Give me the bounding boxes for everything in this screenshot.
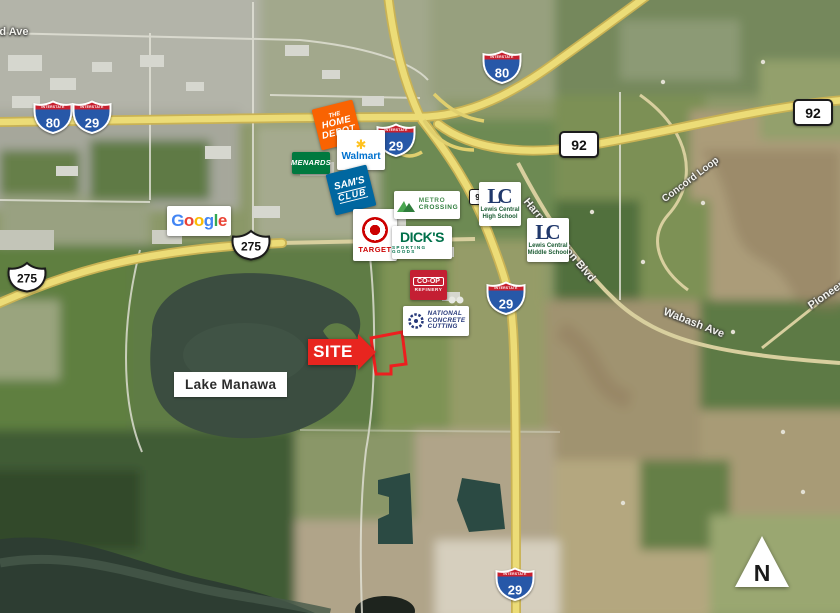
shield-ia92-middle: 92 — [559, 131, 599, 158]
route-number: 80 — [495, 66, 509, 81]
route-number: 80 — [46, 116, 60, 131]
shield-i29-middle: INTERSTATE29 — [486, 281, 526, 315]
logo-text: TARGET — [358, 246, 391, 254]
logo-text: CO-OP — [413, 277, 444, 286]
north-letter: N — [754, 560, 771, 586]
logo-national-concrete-cutting: NATIONAL CONCRETE CUTTING — [403, 306, 469, 336]
route-number: 29 — [389, 139, 403, 154]
logo-text: Walmart — [341, 152, 380, 163]
interstate-banner: INTERSTATE — [490, 55, 514, 59]
route-number: 29 — [85, 116, 99, 131]
north-arrow: N — [733, 534, 791, 590]
logo-text: o — [184, 212, 194, 230]
site-label: SITE — [308, 339, 358, 365]
logo-text: g — [204, 212, 214, 230]
route-number: 29 — [499, 297, 513, 312]
logo-text: CUTTING — [428, 324, 458, 331]
logo-text: REFINERY — [415, 288, 443, 293]
street-label: 3rd Ave — [0, 26, 29, 38]
logo-text: MENARDS — [291, 159, 331, 167]
interstate-banner: INTERSTATE — [503, 572, 527, 576]
lc-monogram: LC — [487, 187, 512, 207]
interstate-banner: INTERSTATE — [41, 105, 65, 109]
shield-i80-top: INTERSTATE80 — [482, 50, 522, 84]
logo-text: Middle School — [528, 250, 569, 257]
logo-walmart: ✱ Walmart — [337, 130, 385, 170]
logo-menards: MENARDS — [292, 152, 330, 174]
logo-metro-crossing: METRO CROSSING — [394, 191, 460, 219]
saw-blade-icon — [407, 312, 425, 330]
route-number: 92 — [805, 105, 821, 121]
interstate-banner: INTERSTATE — [384, 128, 408, 132]
walmart-spark-icon: ✱ — [356, 138, 367, 151]
logo-text: G — [171, 212, 184, 230]
interstate-banner: INTERSTATE — [494, 286, 518, 290]
route-number: 275 — [17, 272, 37, 286]
logo-text: CROSSING — [419, 205, 458, 212]
shield-i29-west: INTERSTATE29 — [72, 100, 112, 134]
logo-text: Lewis Central — [480, 207, 519, 214]
shield-us275-west: 275 — [6, 261, 48, 293]
site-arrow-icon — [358, 334, 376, 370]
shield-i29-bottom: INTERSTATE29 — [495, 567, 535, 601]
route-number: 275 — [241, 240, 261, 254]
logo-text: e — [218, 212, 227, 230]
site-text: SITE — [313, 342, 353, 362]
logo-target: TARGET — [353, 209, 397, 261]
logo-lewis-central-high-school: LC Lewis Central High School — [479, 182, 521, 226]
lake-manawa-label: Lake Manawa — [174, 372, 287, 397]
logo-text: High School — [483, 214, 518, 221]
mountain-icon — [396, 198, 416, 213]
logo-coop-refinery: CO-OP REFINERY — [410, 270, 447, 300]
site-callout: SITE — [308, 334, 380, 370]
logo-text: DICK'S — [400, 230, 444, 245]
aerial-site-map: 3rd Ave Wabash Ave Harry Langdon Blvd Pi… — [0, 0, 840, 613]
interstate-banner: INTERSTATE — [80, 105, 104, 109]
route-number: 92 — [571, 137, 587, 153]
shield-i80-west: INTERSTATE80 — [33, 100, 73, 134]
logo-text: Lewis Central — [528, 243, 567, 250]
logo-lewis-central-middle-school: LC Lewis Central Middle School — [527, 218, 569, 262]
logo-dicks-sporting-goods: DICK'S SPORTING GOODS — [392, 226, 452, 259]
shield-us275-center: 275 — [230, 229, 272, 261]
logo-text: SPORTING GOODS — [392, 246, 452, 256]
logo-text: o — [194, 212, 204, 230]
shield-ia92-east: 92 — [793, 99, 833, 126]
logo-google: G o o g l e — [167, 206, 231, 236]
route-number: 29 — [508, 583, 522, 598]
lc-monogram: LC — [535, 223, 560, 243]
target-bullseye-icon — [362, 217, 388, 243]
